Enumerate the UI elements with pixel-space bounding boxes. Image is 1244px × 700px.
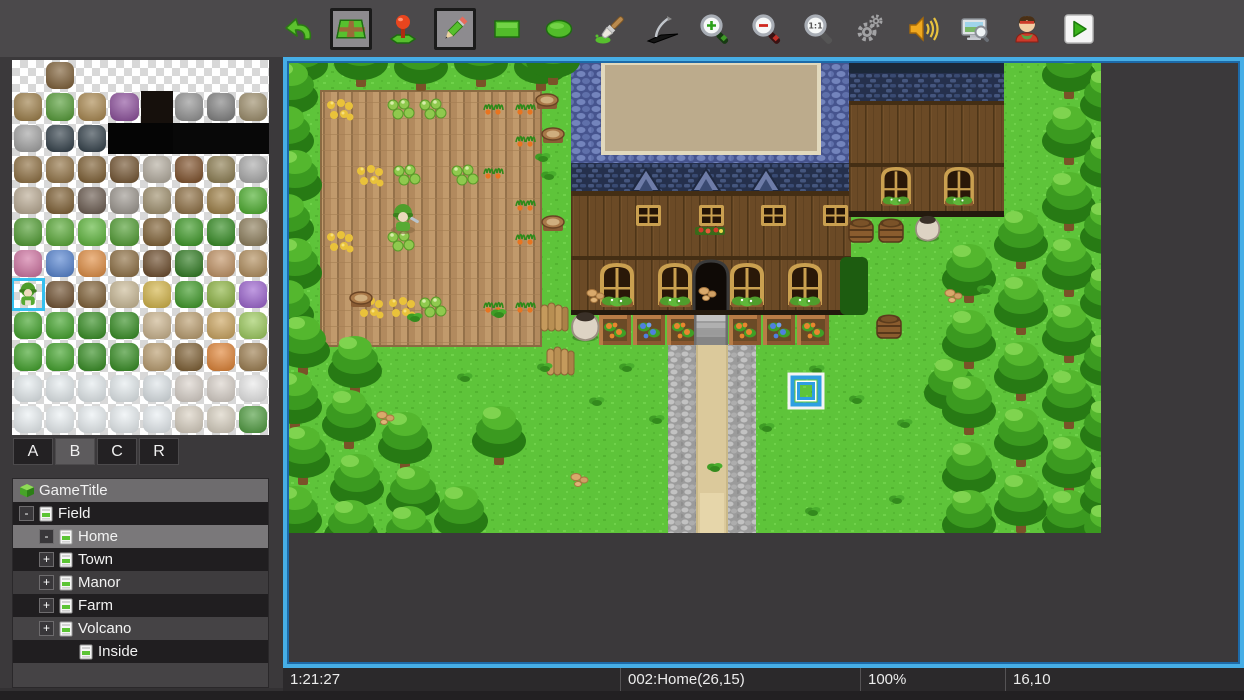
expand-icon[interactable]: + xyxy=(39,621,54,636)
play-icon xyxy=(1062,12,1096,46)
palette-tile-r10c5[interactable] xyxy=(173,373,205,404)
palette-tile-r6c5[interactable] xyxy=(173,248,205,279)
undo-icon xyxy=(282,12,316,46)
palette-tile-r0c7[interactable] xyxy=(237,60,269,91)
shadow-pen-tool-slot xyxy=(642,8,684,50)
palette-tile-r0c2[interactable] xyxy=(76,60,108,91)
expand-icon[interactable]: + xyxy=(39,552,54,567)
palette-tile-r11c3[interactable] xyxy=(108,404,140,435)
rectangle-icon xyxy=(490,12,524,46)
project-cube-icon xyxy=(19,483,35,499)
tileset-tab-c[interactable]: C xyxy=(97,438,137,465)
tree-item-label: Home xyxy=(78,528,118,545)
character-icon xyxy=(1010,12,1044,46)
palette-tile-r2c7[interactable] xyxy=(237,123,269,154)
palette-tile-r3c4[interactable] xyxy=(141,154,173,185)
palette-tile-r7c4[interactable] xyxy=(141,279,173,310)
character-generator-button[interactable] xyxy=(1010,12,1044,46)
tile-art xyxy=(239,312,267,339)
status-cursor-coords: 16,10 xyxy=(1005,668,1244,691)
palette-tile-r6c7[interactable] xyxy=(237,248,269,279)
tile-art xyxy=(239,93,267,120)
tile-art xyxy=(78,281,106,308)
tree-item-inside[interactable]: Inside xyxy=(13,640,268,663)
tile-art xyxy=(110,93,138,120)
left-panel: ABCR GameTitle-Field-Home+Town+Manor+Far… xyxy=(0,57,283,700)
tile-art xyxy=(175,156,203,183)
event-searcher-slot xyxy=(954,8,996,50)
tile-art xyxy=(14,156,42,183)
palette-tile-r8c4[interactable] xyxy=(141,310,173,341)
palette-tile-r1c1[interactable] xyxy=(44,91,76,122)
tree-item-label: Farm xyxy=(78,597,113,614)
palette-tile-r11c2[interactable] xyxy=(76,404,108,435)
playtest-button[interactable] xyxy=(1062,12,1096,46)
palette-tile-r10c4[interactable] xyxy=(141,373,173,404)
tile-art xyxy=(110,343,138,370)
undo-button[interactable] xyxy=(282,12,316,46)
tile-art xyxy=(14,250,42,277)
tile-art xyxy=(175,375,203,402)
palette-tile-r2c3[interactable] xyxy=(108,123,140,154)
palette-tile-r8c3[interactable] xyxy=(108,310,140,341)
tile-art xyxy=(143,218,171,245)
tile-art xyxy=(14,93,42,120)
tile-art xyxy=(239,281,267,308)
palette-tile-r2c2[interactable] xyxy=(76,123,108,154)
tree-item-farm[interactable]: +Farm xyxy=(13,594,268,617)
fill-icon xyxy=(594,12,628,46)
tile-art xyxy=(108,123,140,154)
status-bar: 1:21:27002:Home(26,15)100%16,10 xyxy=(283,668,1244,691)
palette-tile-r2c6[interactable] xyxy=(205,123,237,154)
palette-tile-r9c3[interactable] xyxy=(108,341,140,372)
tree-item-home[interactable]: -Home xyxy=(13,525,268,548)
palette-tile-r11c1[interactable] xyxy=(44,404,76,435)
palette-tile-r10c3[interactable] xyxy=(108,373,140,404)
tree-item-town[interactable]: +Town xyxy=(13,548,268,571)
tile-art xyxy=(175,312,203,339)
map-file-icon xyxy=(58,575,74,591)
collapse-icon[interactable]: - xyxy=(39,529,54,544)
palette-tile-r9c0[interactable] xyxy=(12,341,44,372)
tile-art xyxy=(110,312,138,339)
zoom-in-icon xyxy=(698,12,732,46)
tileset-tabs: ABCR xyxy=(13,438,181,465)
pencil-tool-button[interactable] xyxy=(438,12,472,46)
tile-art xyxy=(46,125,74,152)
tile-art xyxy=(239,187,267,214)
palette-tile-r3c5[interactable] xyxy=(173,154,205,185)
stone-path xyxy=(668,344,756,533)
tile-art xyxy=(175,281,203,308)
palette-tile-r4c6[interactable] xyxy=(205,185,237,216)
tile-art xyxy=(207,93,235,120)
palette-tile-r5c0[interactable] xyxy=(12,216,44,247)
palette-tile-r7c5[interactable] xyxy=(173,279,205,310)
palette-tile-r3c7[interactable] xyxy=(237,154,269,185)
map-file-icon xyxy=(38,506,54,522)
gear-icon xyxy=(854,12,888,46)
tile-art xyxy=(46,312,74,339)
palette-tile-r0c1[interactable] xyxy=(44,60,76,91)
status-time: 1:21:27 xyxy=(283,668,620,691)
tile-art xyxy=(46,250,74,277)
palette-tile-r0c5[interactable] xyxy=(173,60,205,91)
tile-art xyxy=(14,343,42,370)
tile-art xyxy=(78,93,106,120)
palette-tile-r1c6[interactable] xyxy=(205,91,237,122)
palette-tile-r7c6[interactable] xyxy=(205,279,237,310)
map-canvas-viewport[interactable] xyxy=(289,63,1238,662)
map-tree: GameTitle-Field-Home+Town+Manor+Farm+Vol… xyxy=(12,478,269,688)
tile-art xyxy=(239,218,267,245)
tree-item-gametitle[interactable]: GameTitle xyxy=(13,479,268,502)
palette-tile-r9c6[interactable] xyxy=(205,341,237,372)
tile-art xyxy=(143,156,171,183)
tile-art xyxy=(239,250,267,277)
shadow-pen-icon xyxy=(646,12,680,46)
palette-tile-r1c2[interactable] xyxy=(76,91,108,122)
palette-tile-r10c2[interactable] xyxy=(76,373,108,404)
palette-tile-r10c6[interactable] xyxy=(205,373,237,404)
palette-tile-r6c2[interactable] xyxy=(76,248,108,279)
tile-art xyxy=(175,250,203,277)
tile-art xyxy=(110,218,138,245)
map-file-icon xyxy=(58,598,74,614)
ellipse-tool-button[interactable] xyxy=(542,12,576,46)
collapse-icon[interactable]: - xyxy=(19,506,34,521)
pencil-icon xyxy=(440,14,470,44)
tile-art xyxy=(143,312,171,339)
tile-art xyxy=(14,312,42,339)
palette-tile-r0c0[interactable] xyxy=(12,60,44,91)
tile-art xyxy=(207,312,235,339)
palette-tile-r11c5[interactable] xyxy=(173,404,205,435)
palette-tile-r3c0[interactable] xyxy=(12,154,44,185)
palette-tile-r1c3[interactable] xyxy=(108,91,140,122)
tile-art xyxy=(46,281,74,308)
event-edit-mode-button[interactable] xyxy=(386,12,420,46)
tile-art xyxy=(143,406,171,433)
palette-tile-r8c0[interactable] xyxy=(12,310,44,341)
palette-tile-r2c5[interactable] xyxy=(173,123,205,154)
palette-tile-r4c7[interactable] xyxy=(237,185,269,216)
tile-art xyxy=(239,375,267,402)
map-edit-mode-button[interactable] xyxy=(334,12,368,46)
tile-art xyxy=(14,125,42,152)
tile-art xyxy=(175,187,203,214)
tile-art xyxy=(237,123,269,154)
palette-tile-r0c6[interactable] xyxy=(205,60,237,91)
palette-tile-r5c7[interactable] xyxy=(237,216,269,247)
status-map-info: 002:Home(26,15) xyxy=(620,668,860,691)
palette-tile-r1c0[interactable] xyxy=(12,91,44,122)
tileset-palette[interactable] xyxy=(12,60,269,435)
tile-art xyxy=(46,218,74,245)
palette-tile-r4c3[interactable] xyxy=(108,185,140,216)
tile-art xyxy=(78,375,106,402)
map-file-icon xyxy=(58,552,74,568)
palette-tile-r7c7[interactable] xyxy=(237,279,269,310)
palette-tile-r9c5[interactable] xyxy=(173,341,205,372)
palette-tile-r0c3[interactable] xyxy=(108,60,140,91)
tileset-tab-r[interactable]: R xyxy=(139,438,179,465)
entrance-door xyxy=(694,261,728,314)
tile-art xyxy=(46,93,74,120)
palette-tile-r6c6[interactable] xyxy=(205,248,237,279)
tile-art xyxy=(207,218,235,245)
tile-art xyxy=(143,375,171,402)
tile-art xyxy=(14,218,42,245)
tile-art xyxy=(143,250,171,277)
speaker-icon xyxy=(906,12,940,46)
tree-item-manor[interactable]: +Manor xyxy=(13,571,268,594)
tile-art xyxy=(175,406,203,433)
event-edit-mode-slot xyxy=(382,8,424,50)
tile-art xyxy=(46,406,74,433)
palette-tile-r2c1[interactable] xyxy=(44,123,76,154)
tile-art xyxy=(239,343,267,370)
pencil-tool-slot xyxy=(434,8,476,50)
tile-art xyxy=(78,187,106,214)
palette-tile-r2c4[interactable] xyxy=(141,123,173,154)
palette-tile-r7c2[interactable] xyxy=(76,279,108,310)
palette-tile-r11c7[interactable] xyxy=(237,404,269,435)
palette-tile-r8c6[interactable] xyxy=(205,310,237,341)
palette-tile-r3c2[interactable] xyxy=(76,154,108,185)
tile-art xyxy=(141,91,173,122)
palette-tile-r7c1[interactable] xyxy=(44,279,76,310)
tile-art xyxy=(14,187,42,214)
tile-art xyxy=(110,187,138,214)
tile-art xyxy=(207,406,235,433)
palette-tile-r10c7[interactable] xyxy=(237,373,269,404)
palette-tile-r9c4[interactable] xyxy=(141,341,173,372)
palette-tile-r2c0[interactable] xyxy=(12,123,44,154)
actual-size-slot: 1:1 xyxy=(798,8,840,50)
tree-item-label: Volcano xyxy=(78,620,131,637)
hedge xyxy=(840,257,868,315)
screen-search-icon xyxy=(958,12,992,46)
tree-item-field[interactable]: -Field xyxy=(13,502,268,525)
entrance-steps xyxy=(694,315,728,345)
palette-tile-r6c4[interactable] xyxy=(141,248,173,279)
tree-item-label: Manor xyxy=(78,574,121,591)
event-pin-icon xyxy=(386,12,420,46)
expand-icon[interactable]: + xyxy=(39,598,54,613)
tile-art xyxy=(173,123,205,154)
tile-art xyxy=(143,343,171,370)
tile-art xyxy=(207,187,235,214)
zoom-in-button[interactable] xyxy=(698,12,732,46)
options-slot xyxy=(850,8,892,50)
tile-art xyxy=(14,406,42,433)
tile-art xyxy=(78,250,106,277)
playtest-slot xyxy=(1058,8,1100,50)
tile-art xyxy=(110,375,138,402)
tile-art xyxy=(207,156,235,183)
sound-test-slot xyxy=(902,8,944,50)
palette-tile-r5c4[interactable] xyxy=(141,216,173,247)
expand-icon[interactable]: + xyxy=(39,575,54,590)
tile-art xyxy=(207,375,235,402)
tileset-grid xyxy=(12,60,269,435)
zoom-1-1-icon: 1:1 xyxy=(802,12,836,46)
tile-art xyxy=(143,281,171,308)
palette-tile-r10c0[interactable] xyxy=(12,373,44,404)
tile-art xyxy=(110,250,138,277)
farmer-character-tile[interactable] xyxy=(12,279,44,310)
palette-tile-r9c2[interactable] xyxy=(76,341,108,372)
palette-tile-r3c6[interactable] xyxy=(205,154,237,185)
tile-art xyxy=(175,218,203,245)
zoom-out-icon xyxy=(750,12,784,46)
tile-art xyxy=(110,281,138,308)
map-mode-icon xyxy=(336,14,366,44)
tree-item-volcano[interactable]: +Volcano xyxy=(13,617,268,640)
svg-text:1:1: 1:1 xyxy=(808,21,823,30)
palette-tile-r1c4[interactable] xyxy=(141,91,173,122)
tile-art xyxy=(78,343,106,370)
palette-tile-r11c0[interactable] xyxy=(12,404,44,435)
tile-art xyxy=(141,123,173,154)
palette-tile-r8c7[interactable] xyxy=(237,310,269,341)
palette-tile-r8c1[interactable] xyxy=(44,310,76,341)
character-generator-slot xyxy=(1006,8,1048,50)
building-main xyxy=(571,63,851,345)
undo-slot xyxy=(278,8,320,50)
palette-tile-r7c3[interactable] xyxy=(108,279,140,310)
farmer-icon xyxy=(14,281,42,308)
map-canvas-frame xyxy=(283,57,1244,668)
bottom-strip xyxy=(0,691,1244,700)
tree-item-label: Inside xyxy=(98,643,138,660)
tile-art xyxy=(46,343,74,370)
palette-tile-r4c1[interactable] xyxy=(44,185,76,216)
ellipse-icon xyxy=(542,12,576,46)
map-canvas[interactable] xyxy=(289,63,1101,533)
palette-tile-r5c5[interactable] xyxy=(173,216,205,247)
tile-art xyxy=(46,187,74,214)
palette-tile-r4c4[interactable] xyxy=(141,185,173,216)
palette-tile-r11c6[interactable] xyxy=(205,404,237,435)
palette-tile-r5c6[interactable] xyxy=(205,216,237,247)
tile-art xyxy=(14,375,42,402)
zoom-out-slot xyxy=(746,8,788,50)
zoom-out-button[interactable] xyxy=(750,12,784,46)
tree-item-label: GameTitle xyxy=(39,482,108,499)
palette-tile-r4c0[interactable] xyxy=(12,185,44,216)
palette-tile-r0c4[interactable] xyxy=(141,60,173,91)
tile-art xyxy=(175,343,203,370)
tree-item-label: Town xyxy=(78,551,113,568)
tile-art xyxy=(78,156,106,183)
tile-art xyxy=(205,123,237,154)
palette-tile-r6c3[interactable] xyxy=(108,248,140,279)
tile-art xyxy=(143,187,171,214)
tile-art xyxy=(207,343,235,370)
tileset-tab-a[interactable]: A xyxy=(13,438,53,465)
palette-tile-r5c1[interactable] xyxy=(44,216,76,247)
palette-tile-r11c4[interactable] xyxy=(141,404,173,435)
sound-test-button[interactable] xyxy=(906,12,940,46)
palette-tile-r4c2[interactable] xyxy=(76,185,108,216)
event-searcher-button[interactable] xyxy=(958,12,992,46)
tile-art xyxy=(110,406,138,433)
tile-art xyxy=(239,156,267,183)
actual-size-button[interactable]: 1:1 xyxy=(802,12,836,46)
tile-art xyxy=(46,156,74,183)
palette-tile-r9c1[interactable] xyxy=(44,341,76,372)
palette-tile-r5c3[interactable] xyxy=(108,216,140,247)
palette-tile-r10c1[interactable] xyxy=(44,373,76,404)
map-file-icon xyxy=(58,529,74,545)
zoom-in-slot xyxy=(694,8,736,50)
shadow-pen-tool-button[interactable] xyxy=(646,12,680,46)
palette-tile-r6c1[interactable] xyxy=(44,248,76,279)
tile-art xyxy=(239,406,267,433)
ellipse-tool-slot xyxy=(538,8,580,50)
tile-art xyxy=(46,375,74,402)
palette-tile-r5c2[interactable] xyxy=(76,216,108,247)
palette-tile-r1c5[interactable] xyxy=(173,91,205,122)
window-flowerbox xyxy=(695,227,725,235)
palette-tile-r6c0[interactable] xyxy=(12,248,44,279)
tile-art xyxy=(78,406,106,433)
map-edit-mode-slot xyxy=(330,8,372,50)
status-zoom-level: 100% xyxy=(860,668,1005,691)
palette-tile-r4c5[interactable] xyxy=(173,185,205,216)
palette-tile-r8c5[interactable] xyxy=(173,310,205,341)
palette-tile-r8c2[interactable] xyxy=(76,310,108,341)
palette-tile-r3c3[interactable] xyxy=(108,154,140,185)
flood-fill-tool-button[interactable] xyxy=(594,12,628,46)
tile-art xyxy=(46,62,74,89)
tile-art xyxy=(207,281,235,308)
options-button[interactable] xyxy=(854,12,888,46)
map-file-icon xyxy=(58,621,74,637)
palette-tile-r1c7[interactable] xyxy=(237,91,269,122)
rpg-maker-editor: 1:1 ABCR GameTitle-Field-Home+Town+Manor… xyxy=(0,0,1244,700)
flood-fill-tool-slot xyxy=(590,8,632,50)
building-right xyxy=(849,63,1004,217)
tile-art xyxy=(78,312,106,339)
rectangle-tool-slot xyxy=(486,8,528,50)
tile-art xyxy=(110,156,138,183)
farm-plot xyxy=(321,91,541,346)
rectangle-tool-button[interactable] xyxy=(490,12,524,46)
tile-art xyxy=(175,93,203,120)
tileset-tab-b[interactable]: B xyxy=(55,438,95,465)
toolbar: 1:1 xyxy=(0,0,1244,57)
palette-tile-r3c1[interactable] xyxy=(44,154,76,185)
tile-art xyxy=(207,250,235,277)
tile-art xyxy=(78,218,106,245)
tile-art xyxy=(78,125,106,152)
map-file-icon xyxy=(78,644,94,660)
palette-tile-r9c7[interactable] xyxy=(237,341,269,372)
tree-item-label: Field xyxy=(58,505,91,522)
